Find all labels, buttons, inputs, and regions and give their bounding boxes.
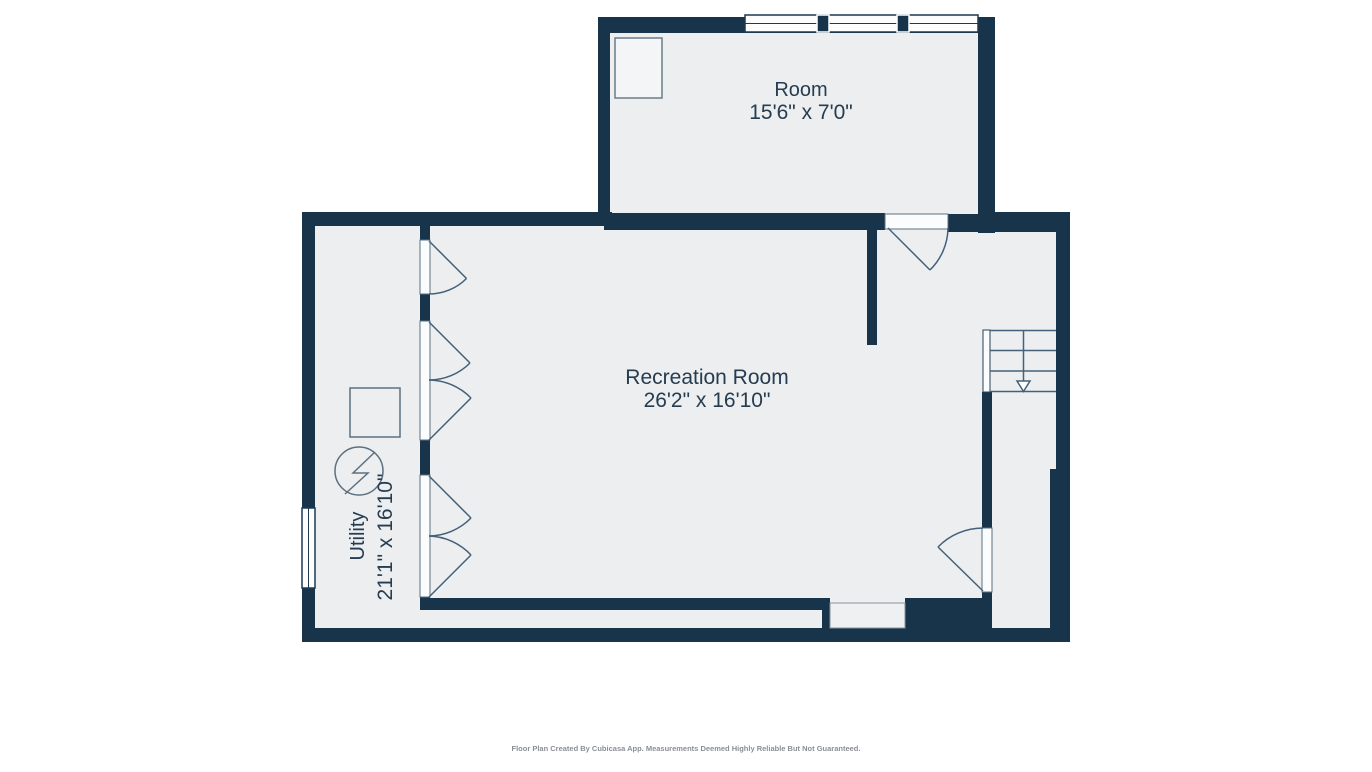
wall-corridor-upper — [982, 392, 992, 528]
room-dims-recreation: 26'2" x 16'10" — [644, 389, 771, 412]
wall-rec-bottom — [420, 598, 830, 610]
door-opening-utility-2 — [420, 321, 430, 440]
footer-disclaimer: Floor Plan Created By Cubicasa App. Meas… — [512, 744, 861, 753]
wall-top-left — [302, 212, 612, 226]
wall-shared — [604, 213, 885, 230]
wall-bottom-gap — [822, 610, 830, 628]
window-mullion — [817, 15, 829, 32]
wall-room-right — [978, 17, 995, 233]
room-label-recreation: Recreation Room — [625, 366, 788, 389]
room-dims-utility: 21'1" x 16'10" — [374, 474, 397, 601]
floor-plan-page: Room 15'6" x 7'0" Recreation Room 26'2" … — [0, 0, 1372, 772]
closet-room — [615, 38, 662, 98]
door-opening-corridor — [982, 528, 992, 592]
utility-square-fixture — [350, 388, 400, 437]
floor-plan-svg: Room 15'6" x 7'0" Recreation Room 26'2" … — [0, 0, 1372, 772]
wall-corridor-lower — [982, 592, 992, 628]
room-label-utility: Utility — [347, 512, 369, 561]
single-window-left — [302, 508, 315, 588]
wall-right-lower — [1050, 469, 1070, 642]
room-dims-room: 15'6" x 7'0" — [749, 101, 853, 124]
wall-top-right-a — [948, 214, 995, 232]
wall-room-left — [598, 17, 610, 218]
stair-rail — [983, 330, 990, 392]
door-opening-utility-3 — [420, 475, 430, 597]
wall-bottom-block — [905, 598, 992, 628]
window-mullion — [897, 15, 909, 32]
triple-window-top — [745, 15, 978, 32]
bottom-opening-fixture — [830, 603, 905, 628]
wall-stub-recreation — [867, 228, 877, 345]
wall-right-upper — [1056, 212, 1070, 472]
room-label-room: Room — [774, 79, 827, 101]
door-opening-utility-1 — [420, 240, 430, 294]
wall-bottom — [302, 628, 1070, 642]
door-opening-room — [885, 214, 948, 229]
